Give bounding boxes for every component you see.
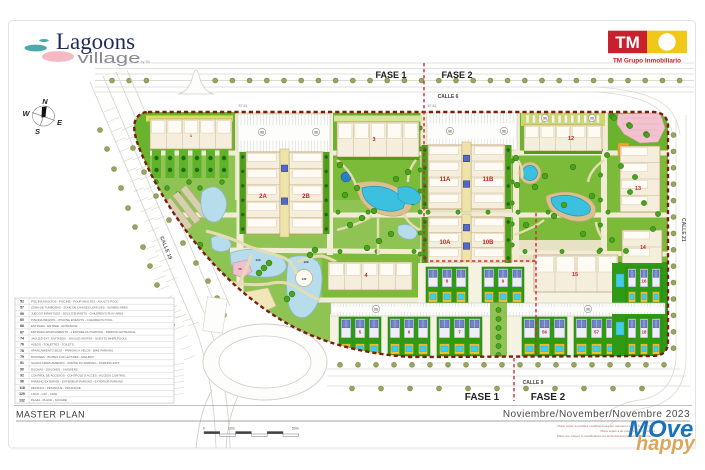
svg-text:FASE 1: FASE 1 (465, 392, 500, 403)
svg-text:52: 52 (20, 299, 24, 303)
svg-text:PETANCA - PETANQUE - PETANQUE: PETANCA - PETANQUE - PETANQUE (31, 386, 81, 390)
svg-text:57.51: 57.51 (428, 104, 437, 108)
svg-text:57: 57 (20, 306, 24, 310)
svg-text:129: 129 (255, 258, 260, 262)
svg-text:78: 78 (20, 349, 24, 353)
svg-text:0: 0 (203, 427, 205, 431)
svg-text:FASE 2: FASE 2 (531, 392, 566, 403)
svg-text:96: 96 (586, 307, 590, 311)
svg-text:92: 92 (20, 374, 24, 378)
svg-text:13: 13 (635, 186, 641, 192)
svg-text:ENTRADA APARCAMIENTO - L'ENTRE: ENTRADA APARCAMIENTO - L'ENTREE DU PARKI… (31, 330, 135, 334)
svg-text:16: 16 (641, 279, 647, 284)
svg-text:ASEOS - TOILETTES - TOILETS: ASEOS - TOILETTES - TOILETS (31, 343, 74, 347)
svg-text:3: 3 (372, 137, 375, 143)
svg-text:N: N (42, 97, 48, 106)
svg-text:ZONA DE TUMBONAS - ZONE DE CHA: ZONA DE TUMBONAS - ZONE DE CHAISES LONGU… (31, 305, 128, 309)
svg-text:96: 96 (502, 129, 506, 133)
svg-text:15: 15 (572, 272, 578, 278)
svg-text:BUZONES - BOITES AUX LETTRES -: BUZONES - BOITES AUX LETTRES - MAILBOX (31, 355, 94, 359)
svg-text:96: 96 (374, 307, 378, 311)
svg-text:CONTROL DE ACCESOS - CONTROLE: CONTROL DE ACCESOS - CONTROLE D'ACCES - … (31, 373, 126, 377)
svg-text:132: 132 (302, 277, 307, 281)
svg-text:DUCHAS - DOUCHES - SHOWERS: DUCHAS - DOUCHES - SHOWERS (31, 367, 78, 371)
svg-text:66: 66 (20, 324, 24, 328)
svg-text:JACUZZI EXT. INVITADOS - JACUZ: JACUZZI EXT. INVITADOS - JACUZZI INVITES… (31, 336, 127, 340)
svg-text:CALLE 6: CALLE 6 (438, 94, 459, 100)
svg-text:11B: 11B (483, 177, 494, 183)
svg-text:60: 60 (20, 318, 24, 322)
svg-text:PISCINA INFANTIL - PISCINE ENF: PISCINA INFANTIL - PISCINE ENFANTS - CHI… (31, 318, 113, 322)
svg-text:MASTER PLAN: MASTER PLAN (16, 410, 85, 420)
svg-text:CALLE 9: CALLE 9 (523, 380, 544, 386)
svg-text:74: 74 (20, 336, 24, 340)
svg-text:PARKING EXTERIOR - EXTERIEUR P: PARKING EXTERIOR - EXTERIEUR PARKING - E… (31, 380, 124, 384)
svg-text:132: 132 (19, 398, 25, 402)
svg-text:PLAZA - PLACE - SQUARE: PLAZA - PLACE - SQUARE (31, 398, 67, 402)
svg-text:90: 90 (20, 367, 24, 371)
svg-text:CALLE 21: CALLE 21 (680, 218, 686, 242)
svg-text:2A: 2A (259, 194, 267, 200)
svg-text:96: 96 (20, 380, 24, 384)
svg-text:APARCAMIENTO BICIS - PARKING A: APARCAMIENTO BICIS - PARKING A VELOS - B… (31, 349, 114, 353)
svg-text:FASE 2: FASE 2 (441, 70, 472, 80)
svg-text:76: 76 (20, 343, 24, 347)
svg-text:50m: 50m (292, 427, 299, 431)
svg-text:JUEGOS INFANTILES - JEUX D'ENF: JUEGOS INFANTILES - JEUX D'ENFANTS - CHI… (31, 312, 123, 316)
svg-text:10B: 10B (482, 240, 494, 246)
svg-text:W: W (22, 109, 30, 118)
svg-text:14: 14 (640, 245, 646, 251)
svg-text:by TM: by TM (141, 60, 150, 64)
svg-text:TM: TM (615, 33, 640, 52)
svg-text:79: 79 (20, 355, 24, 359)
svg-text:96: 96 (260, 130, 264, 134)
svg-text:96: 96 (448, 129, 452, 133)
svg-text:59: 59 (20, 312, 24, 316)
svg-text:happy: happy (636, 433, 696, 455)
svg-text:67: 67 (20, 330, 24, 334)
svg-text:18: 18 (641, 329, 647, 334)
svg-text:FASE 1: FASE 1 (375, 70, 406, 80)
svg-text:10A: 10A (439, 240, 451, 246)
svg-text:129: 129 (19, 392, 25, 396)
svg-text:96: 96 (543, 116, 547, 120)
svg-text:58: 58 (238, 267, 242, 271)
svg-text:57.51: 57.51 (239, 104, 248, 108)
svg-text:2B: 2B (302, 194, 310, 200)
svg-text:118: 118 (19, 386, 25, 390)
svg-text:village: village (78, 51, 141, 67)
svg-text:129: 129 (303, 260, 308, 264)
svg-text:96: 96 (314, 130, 318, 134)
svg-text:56: 56 (542, 329, 548, 334)
svg-text:10m: 10m (228, 427, 235, 431)
svg-text:ENTRADA - ENTREE - ENTRANCE: ENTRADA - ENTREE - ENTRANCE (31, 324, 77, 328)
svg-text:96: 96 (590, 116, 594, 120)
svg-text:LAGO - LAC - LAKE: LAGO - LAC - LAKE (31, 392, 57, 396)
svg-text:PISCINA ADULTOS - PISCINE - PO: PISCINA ADULTOS - PISCINE - POUR ADULTES… (31, 299, 119, 303)
svg-text:11A: 11A (440, 177, 451, 183)
svg-text:TM Grupo Inmobiliario: TM Grupo Inmobiliario (613, 58, 681, 65)
svg-text:SALIDA APARCAMIENTO - SORTIE D: SALIDA APARCAMIENTO - SORTIE DU PARKING … (31, 361, 119, 365)
svg-text:12: 12 (568, 136, 574, 142)
svg-text:81: 81 (20, 361, 24, 365)
svg-text:57: 57 (594, 329, 600, 334)
svg-text:S: S (35, 127, 40, 136)
